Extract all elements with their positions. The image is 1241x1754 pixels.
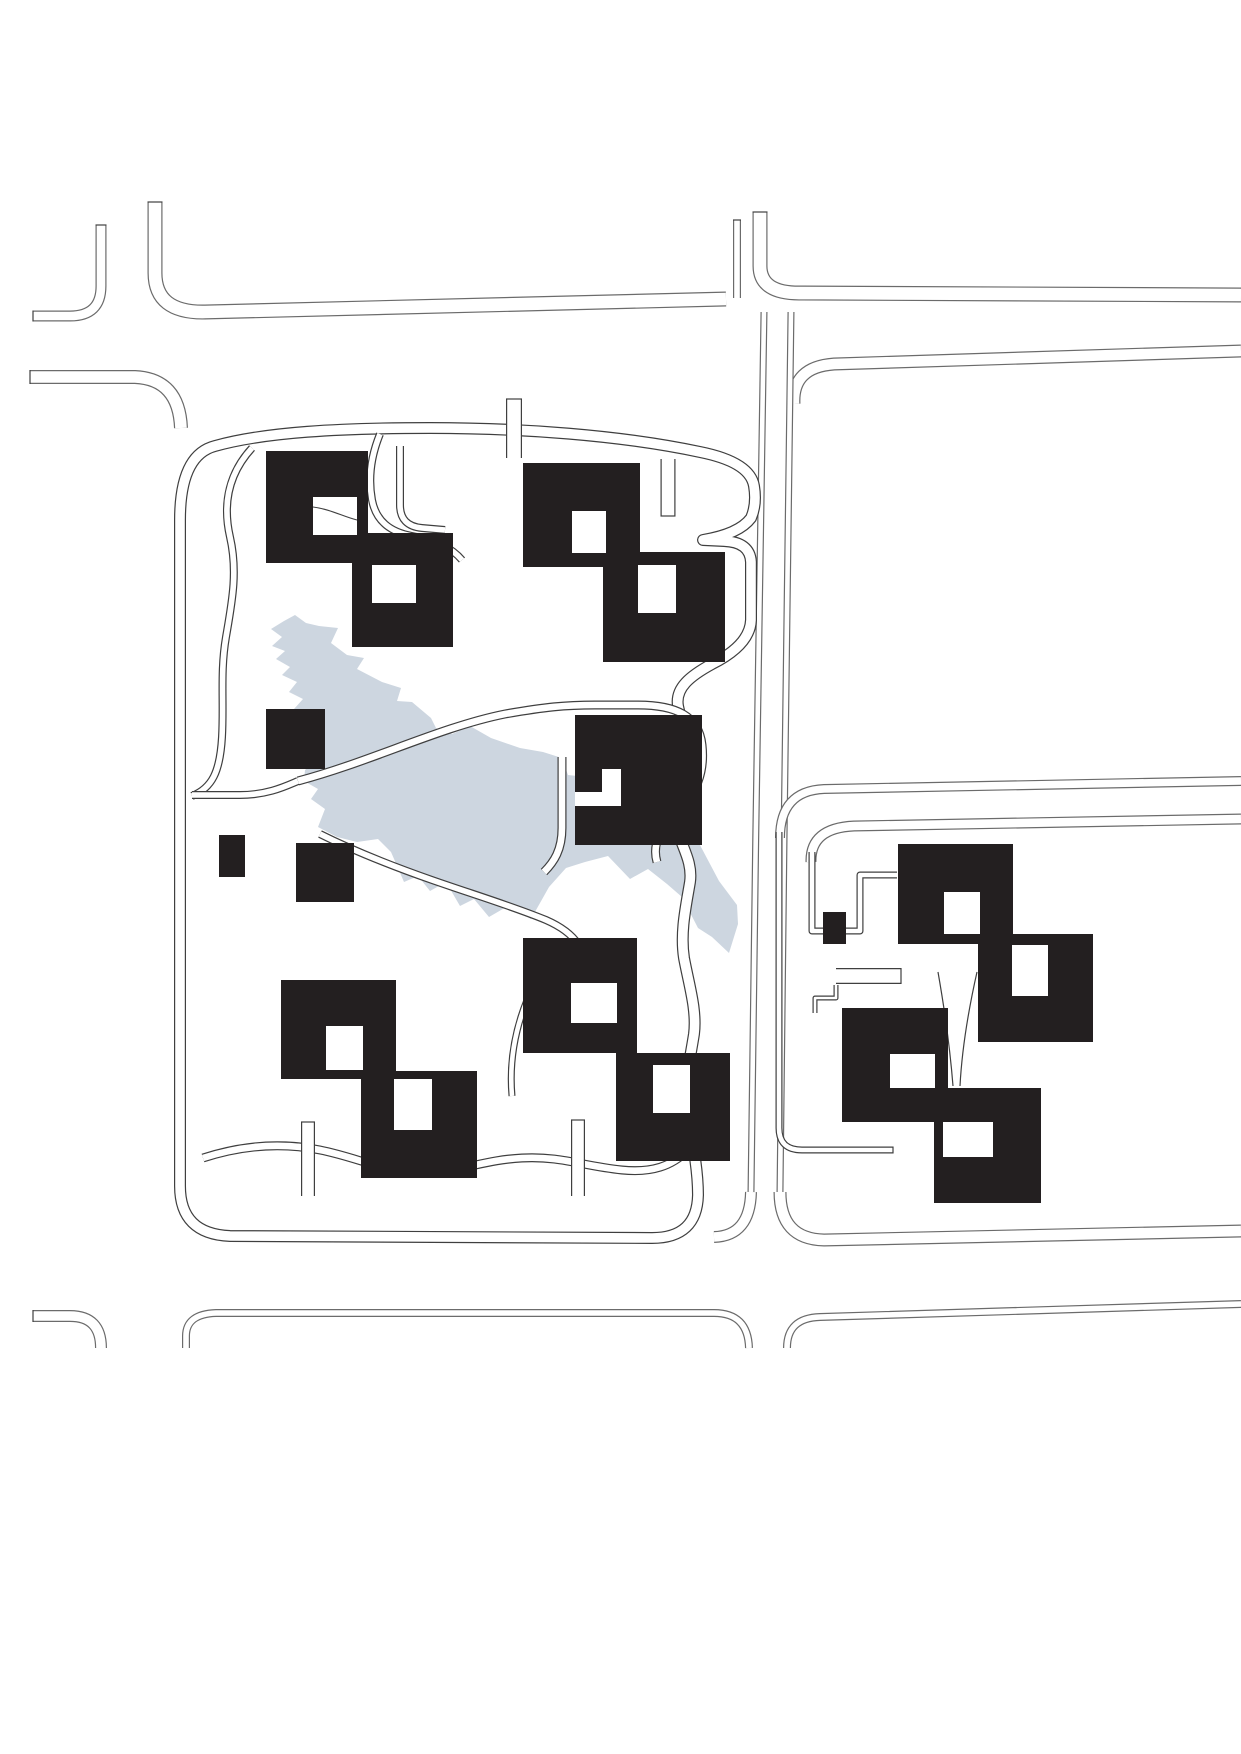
courtyard-cluster5-b-court [653,1065,690,1113]
street-street-top-north-right-surface [760,212,1241,295]
courtyard-cluster7-a-court [890,1054,935,1088]
courtyard-cluster6-a-court [944,892,980,934]
street-street-bottom-block-right-surface [787,1304,1241,1348]
path-path-north-drop-edge [400,446,445,530]
building-small-rect-west [219,835,245,877]
street-street-mid-vertical-left-surface [751,312,764,1192]
courtyard-cluster2-b-court [638,565,676,613]
site-plan-svg [0,0,1241,1754]
courtyard-cluster2-a-court [572,511,606,553]
street-street-bottom-block-left-surface [186,1313,749,1348]
courtyard-cluster1-a-court [313,497,357,535]
courtyard-cluster5-a-court [571,983,617,1023]
courtyard-central-notch-vertical [602,769,621,806]
street-street-top-north-right-edge [760,212,1241,295]
street-street-second-south-west-surface [30,377,181,428]
courtyard-cluster4-a-court [326,1026,363,1070]
site-plan-page [0,0,1241,1754]
street-street-nw-corner-strip-surface [33,225,101,316]
street-street-bottom-block-left-edge [186,1313,749,1348]
building-small-square-southwest [296,843,354,902]
path-path-west-scurve-surface [192,448,252,796]
street-street-top-north-left-surface [155,202,726,312]
path-path-right-block-conn-surface [815,985,836,1013]
courtyard-cluster7-b-court [943,1122,993,1157]
street-street-sw-corner-strip-surface [33,1316,101,1348]
street-street-nw-corner-strip-edge [33,225,101,316]
wedge-line-east [960,972,977,1086]
building-central-notched-square [575,715,702,845]
courtyard-cluster4-b-court [394,1079,432,1130]
building-small-square-west [266,709,325,769]
courtyard-cluster1-b-court [372,565,416,603]
building-small-square-east [823,912,846,944]
courtyard-cluster6-b-court [1012,945,1048,996]
